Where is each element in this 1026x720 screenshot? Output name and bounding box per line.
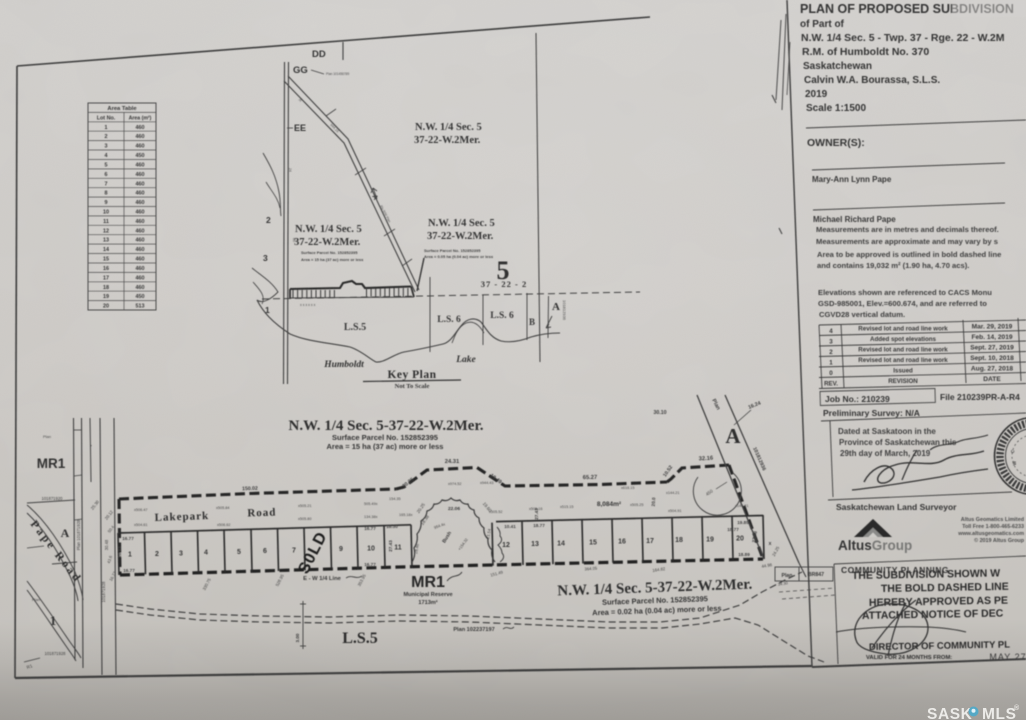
- svg-text:REV.: REV.: [824, 381, 838, 388]
- svg-text:1: 1: [829, 360, 833, 367]
- svg-text:2: 2: [105, 134, 108, 140]
- svg-text:Key Plan: Key Plan: [387, 369, 436, 381]
- svg-text:12: 12: [103, 228, 109, 234]
- svg-text:1: 1: [105, 125, 108, 131]
- svg-text:9: 9: [339, 546, 343, 553]
- svg-text:OWNER(S):: OWNER(S):: [807, 137, 865, 149]
- svg-text:65.27: 65.27: [583, 475, 598, 481]
- svg-text:2: 2: [829, 349, 833, 356]
- svg-text:L.S.5: L.S.5: [342, 630, 378, 647]
- svg-text:Municipal Reserve: Municipal Reserve: [403, 592, 452, 598]
- svg-text:19: 19: [706, 536, 714, 543]
- svg-text:REVISION: REVISION: [888, 378, 918, 385]
- svg-text:2: 2: [155, 551, 159, 558]
- svg-text:Preliminary Survey: N/A: Preliminary Survey: N/A: [823, 408, 920, 418]
- svg-text:Area = 15 ha (37 ac) more or l: Area = 15 ha (37 ac) more or less: [301, 257, 364, 262]
- svg-text:Plan: Plan: [782, 573, 793, 579]
- svg-text:15: 15: [103, 257, 109, 263]
- svg-text:513: 513: [136, 304, 145, 310]
- svg-text:Plan: Plan: [32, 597, 40, 602]
- svg-text:460: 460: [136, 191, 145, 197]
- svg-text:Job No.: 210239: Job No.: 210239: [825, 394, 890, 404]
- svg-text:27.43: 27.43: [388, 540, 393, 552]
- svg-text:460: 460: [136, 219, 145, 225]
- svg-text:8,084m²: 8,084m²: [597, 501, 622, 508]
- svg-text:101812936: 101812936: [562, 300, 567, 321]
- svg-text:5: 5: [237, 549, 241, 556]
- svg-text:Mary-Ann Lynn Pape: Mary-Ann Lynn Pape: [812, 175, 892, 184]
- svg-text:x x x x x x: x x x x x x: [300, 303, 316, 307]
- svg-text:18: 18: [103, 285, 109, 291]
- svg-text:Area to be approved is outline: Area to be approved is outlined in bold …: [817, 250, 1001, 259]
- svg-text:Lake: Lake: [455, 355, 476, 365]
- svg-text:17: 17: [646, 538, 654, 545]
- svg-text:22.06: 22.06: [448, 506, 460, 512]
- svg-text:165.18x: 165.18x: [399, 513, 413, 517]
- svg-text:DATE: DATE: [983, 376, 1001, 383]
- svg-text:12: 12: [502, 542, 510, 549]
- svg-text:4: 4: [204, 550, 208, 557]
- svg-text:20: 20: [103, 304, 109, 310]
- svg-text:16.77: 16.77: [122, 536, 134, 541]
- svg-text:L.S.5: L.S.5: [344, 322, 366, 333]
- svg-text:101871920: 101871920: [42, 496, 64, 501]
- svg-text:Revised lot and road line work: Revised lot and road line work: [858, 347, 948, 354]
- svg-text:Calvin W.A. Bourassa, S.L.S.: Calvin W.A. Bourassa, S.L.S.: [804, 75, 940, 86]
- svg-text:MR1: MR1: [37, 456, 66, 471]
- svg-text:Area = 15 ha (37 ac) more or l: Area = 15 ha (37 ac) more or less: [327, 442, 444, 451]
- svg-text:460: 460: [136, 181, 145, 187]
- svg-text:Mar. 29, 2019: Mar. 29, 2019: [972, 324, 1013, 331]
- svg-text:101871928: 101871928: [101, 581, 106, 603]
- svg-text:24: 24: [288, 168, 292, 172]
- svg-text:8: 8: [105, 191, 108, 197]
- svg-text:37 - 22 - 2: 37 - 22 - 2: [481, 279, 527, 289]
- svg-text:Measurements are approximate a: Measurements are approximate and may var…: [816, 237, 998, 246]
- svg-text:18.89: 18.89: [738, 552, 750, 557]
- svg-text:THE BOLD DASHED LINE: THE BOLD DASHED LINE: [881, 581, 1009, 595]
- svg-text:x944.43: x944.43: [480, 481, 494, 485]
- svg-text:Plan 101871928: Plan 101871928: [76, 519, 81, 550]
- svg-text:4: 4: [829, 328, 833, 335]
- svg-text:11: 11: [103, 219, 109, 225]
- svg-text:16.77: 16.77: [364, 526, 376, 531]
- svg-text:Lakepark: Lakepark: [154, 510, 209, 524]
- svg-text:Surface Parcel No. 152852395: Surface Parcel No. 152852395: [332, 433, 438, 442]
- svg-text:505.49x: 505.49x: [364, 502, 378, 506]
- svg-text:R.M. of Humboldt No. 370: R.M. of Humboldt No. 370: [802, 46, 929, 58]
- svg-text:450: 450: [136, 153, 145, 159]
- svg-text:7: 7: [105, 181, 108, 187]
- svg-text:x505.84: x505.84: [216, 506, 230, 510]
- svg-text:A: A: [725, 424, 741, 448]
- svg-text:32.16: 32.16: [699, 456, 715, 463]
- svg-text:150.02: 150.02: [242, 486, 258, 493]
- svg-text:1: 1: [50, 613, 57, 628]
- svg-text:Surface Parcel No. 152852395: Surface Parcel No. 152852395: [424, 248, 481, 253]
- svg-text:13: 13: [103, 238, 109, 244]
- svg-text:460: 460: [136, 257, 145, 263]
- svg-text:Plan 102237197: Plan 102237197: [453, 627, 494, 633]
- svg-text:17: 17: [103, 275, 109, 281]
- svg-text:460: 460: [136, 144, 145, 150]
- svg-text:Aug. 27, 2018: Aug. 27, 2018: [971, 366, 1013, 373]
- svg-text:0: 0: [829, 370, 833, 377]
- svg-text:GSD-985001, Elev.=600.674, and: GSD-985001, Elev.=600.674, and are refer…: [818, 299, 987, 308]
- svg-text:5: 5: [105, 163, 108, 169]
- svg-text:18.77: 18.77: [533, 523, 545, 528]
- svg-text:450: 450: [136, 294, 145, 300]
- svg-text:EE: EE: [294, 123, 306, 133]
- svg-text:37-22-W.2Mer.: 37-22-W.2Mer.: [414, 135, 481, 146]
- svg-text:CGVD28 vertical datum.: CGVD28 vertical datum.: [819, 310, 905, 319]
- svg-text:Revised lot and road line work: Revised lot and road line work: [858, 326, 948, 333]
- svg-text:x974.52: x974.52: [448, 482, 462, 486]
- svg-text:10: 10: [367, 545, 375, 552]
- svg-text:20: 20: [736, 536, 744, 543]
- svg-text:18: 18: [675, 537, 683, 544]
- svg-text:24.31: 24.31: [445, 459, 460, 465]
- svg-text:11: 11: [394, 545, 402, 552]
- svg-text:x506.62: x506.62: [217, 523, 231, 527]
- svg-text:16.77: 16.77: [364, 562, 376, 567]
- svg-text:Added spot elevations: Added spot elevations: [870, 336, 937, 343]
- svg-text:MLS: MLS: [982, 706, 1017, 720]
- svg-text:A: A: [552, 301, 560, 313]
- svg-text:460: 460: [136, 172, 145, 178]
- svg-text:460: 460: [136, 200, 145, 206]
- svg-text:®: ®: [1014, 704, 1020, 712]
- svg-text:Surface Parcel No. 152852395: Surface Parcel No. 152852395: [301, 250, 358, 255]
- svg-text:N.W. 1/4 Sec. 5 - Twp. 37 - Rg: N.W. 1/4 Sec. 5 - Twp. 37 - Rge. 22 - W.…: [801, 32, 1005, 44]
- svg-text:86: 86: [292, 238, 296, 242]
- svg-text:and contains 19,032 m² (1.90 h: and contains 19,032 m² (1.90 ha, 4.70 ac…: [817, 261, 969, 270]
- svg-text:14: 14: [557, 540, 565, 547]
- svg-text:460: 460: [136, 247, 145, 253]
- svg-text:MAY 27: MAY 27: [989, 652, 1026, 662]
- svg-text:Feb. 14, 2019: Feb. 14, 2019: [971, 334, 1012, 341]
- svg-text:Road: Road: [247, 506, 276, 519]
- svg-text:Revised lot and road line work: Revised lot and road line work: [858, 357, 948, 364]
- svg-text:20.12: 20.12: [117, 546, 122, 558]
- svg-text:6: 6: [105, 172, 108, 178]
- svg-text:Area (m²): Area (m²): [129, 115, 152, 121]
- svg-text:Scale 1:1500: Scale 1:1500: [806, 103, 866, 114]
- svg-text:27.43: 27.43: [534, 508, 539, 520]
- svg-text:13: 13: [531, 541, 539, 548]
- svg-text:1: 1: [128, 552, 132, 559]
- svg-text:9: 9: [105, 200, 108, 206]
- svg-text:ATTACHED NOTICE OF DEC: ATTACHED NOTICE OF DEC: [862, 608, 1004, 622]
- svg-text:x504.61: x504.61: [134, 523, 148, 527]
- svg-text:101871928: 101871928: [45, 651, 67, 656]
- svg-text:L.S. 6: L.S. 6: [437, 315, 461, 325]
- svg-text:BR847: BR847: [808, 572, 824, 578]
- svg-text:19: 19: [103, 294, 109, 300]
- svg-text:460: 460: [136, 228, 145, 234]
- svg-text:460: 460: [136, 275, 145, 281]
- svg-text:N.W. 1/4 Sec. 5-37-22-W.2Mer.: N.W. 1/4 Sec. 5-37-22-W.2Mer.: [289, 418, 484, 434]
- svg-text:37-22-W.2Mer.: 37-22-W.2Mer.: [294, 237, 361, 248]
- svg-text:B: B: [529, 317, 535, 327]
- svg-text:16: 16: [618, 539, 626, 546]
- svg-text:x144.21: x144.21: [735, 504, 749, 508]
- svg-text:VALID FOR 24 MONTHS FROM:: VALID FOR 24 MONTHS FROM:: [866, 655, 952, 661]
- svg-text:Area = 0.05 ha (0.04 ac) more: Area = 0.05 ha (0.04 ac) more or less: [424, 254, 494, 259]
- svg-text:460: 460: [136, 266, 145, 272]
- svg-text:6: 6: [263, 548, 267, 555]
- svg-text:Michael Richard Pape: Michael Richard Pape: [813, 215, 896, 224]
- svg-text:460: 460: [136, 238, 145, 244]
- svg-text:Plan 101456789: Plan 101456789: [326, 72, 349, 76]
- svg-text:x616.15: x616.15: [621, 486, 635, 490]
- svg-text:Altus Geomatics Limited: Altus Geomatics Limited: [961, 517, 1024, 523]
- svg-text:x504.91: x504.91: [668, 509, 682, 513]
- svg-text:14: 14: [103, 247, 109, 253]
- svg-text:x505.25: x505.25: [630, 503, 644, 507]
- svg-text:30.48: 30.48: [104, 539, 109, 550]
- svg-text:www.altusgeomatics.com: www.altusgeomatics.com: [957, 531, 1024, 537]
- svg-text:Humboldt: Humboldt: [323, 360, 364, 370]
- svg-text:30.10: 30.10: [654, 410, 667, 416]
- svg-text:SASK: SASK: [927, 706, 973, 720]
- svg-text:L.S. 6: L.S. 6: [490, 311, 514, 321]
- svg-text:MR1: MR1: [411, 574, 445, 591]
- svg-text:3: 3: [105, 144, 108, 150]
- svg-text:E - W 1/4 Line: E - W 1/4 Line: [303, 576, 341, 582]
- svg-text:Saskatchewan: Saskatchewan: [803, 61, 872, 72]
- svg-text:2019: 2019: [805, 89, 828, 100]
- svg-text:18.77: 18.77: [727, 527, 739, 532]
- svg-text:1713m²: 1713m²: [418, 599, 437, 606]
- svg-text:3: 3: [179, 550, 183, 557]
- svg-text:x: x: [769, 541, 772, 547]
- svg-text:3.00: 3.00: [295, 633, 300, 642]
- svg-text:10: 10: [103, 210, 109, 216]
- svg-text:File 210239PR-A-R4: File 210239PR-A-R4: [940, 392, 1020, 402]
- svg-text:18.30: 18.30: [386, 524, 398, 529]
- svg-text:x144.21: x144.21: [666, 491, 680, 495]
- svg-text:Area Table: Area Table: [107, 106, 137, 112]
- svg-text:Elevations shown are reference: Elevations shown are referenced to CACS …: [818, 288, 992, 297]
- svg-text:Lot No.: Lot No.: [97, 115, 116, 121]
- svg-text:x515.15: x515.15: [560, 505, 574, 509]
- svg-text:15: 15: [589, 540, 597, 547]
- svg-text:7: 7: [292, 547, 296, 554]
- svg-text:Not To Scale: Not To Scale: [395, 383, 430, 390]
- svg-text:460: 460: [136, 285, 145, 291]
- svg-text:N.W. 1/4 Sec. 5: N.W. 1/4 Sec. 5: [295, 224, 362, 235]
- svg-text:A: A: [61, 526, 70, 540]
- svg-text:460: 460: [136, 134, 145, 140]
- svg-text:16.77: 16.77: [123, 568, 135, 573]
- svg-text:10.41: 10.41: [504, 524, 516, 529]
- svg-text:3: 3: [829, 339, 833, 346]
- svg-text:4: 4: [105, 153, 108, 159]
- svg-text:460: 460: [136, 163, 145, 169]
- svg-text:134.38x: 134.38x: [364, 515, 378, 519]
- svg-text:16: 16: [103, 266, 109, 272]
- svg-text:DD: DD: [312, 49, 326, 60]
- svg-text:Measurements are in metres and: Measurements are in metres and decimals …: [816, 225, 999, 234]
- svg-text:37-22-W.2Mer.: 37-22-W.2Mer.: [427, 231, 494, 242]
- svg-text:Dated at Saskatoon in the: Dated at Saskatoon in the: [838, 427, 936, 436]
- svg-text:x506.47: x506.47: [134, 508, 148, 512]
- svg-text:Sept. 10, 2018: Sept. 10, 2018: [970, 355, 1014, 362]
- svg-text:Sept. 27, 2019: Sept. 27, 2019: [970, 345, 1014, 352]
- svg-text:x505.21: x505.21: [298, 504, 312, 508]
- svg-text:Toll Free 1-800-465-6233: Toll Free 1-800-465-6233: [962, 524, 1024, 530]
- svg-text:460: 460: [136, 125, 145, 131]
- svg-text:N.W. 1/4 Sec. 5: N.W. 1/4 Sec. 5: [415, 122, 482, 133]
- svg-text:x505.80: x505.80: [298, 517, 312, 521]
- svg-text:460: 460: [136, 210, 145, 216]
- svg-text:154.35: 154.35: [389, 497, 401, 501]
- svg-text:20.0: 20.0: [651, 497, 657, 507]
- svg-text:19.85: 19.85: [737, 520, 749, 525]
- svg-text:GG: GG: [293, 65, 308, 76]
- svg-text:3: 3: [263, 253, 268, 263]
- svg-text:Issued: Issued: [893, 368, 913, 375]
- svg-text:of Part of: of Part of: [800, 19, 845, 30]
- svg-text:N.W. 1/4 Sec. 5: N.W. 1/4 Sec. 5: [428, 218, 495, 229]
- svg-text:Saskatchewan Land Surveyor: Saskatchewan Land Surveyor: [836, 502, 957, 512]
- svg-text:AltusGroup: AltusGroup: [838, 538, 912, 553]
- svg-text:Plan: Plan: [43, 434, 51, 439]
- svg-text:2: 2: [266, 215, 271, 225]
- svg-text:© 2019 Altus Group: © 2019 Altus Group: [974, 537, 1025, 544]
